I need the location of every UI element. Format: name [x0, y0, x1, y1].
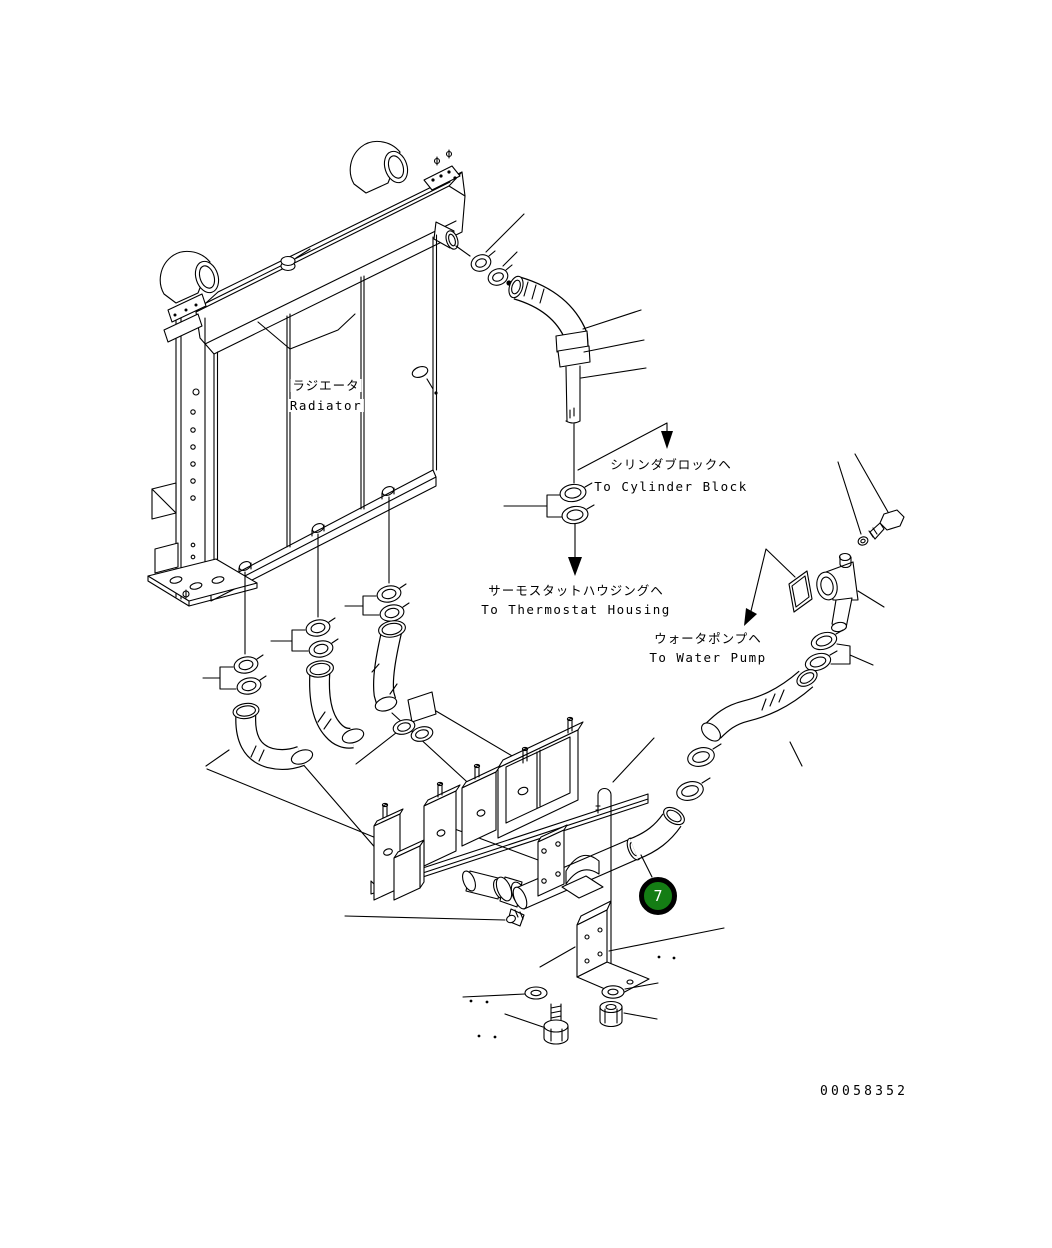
- diagram-line-art: [0, 0, 1052, 1248]
- down-arrow-water-pump: [744, 608, 757, 626]
- cylinder-block-label-en: To Cylinder Block: [592, 480, 749, 493]
- cylinder-block-hose: [469, 214, 673, 576]
- thermostat-housing-label-en: To Thermostat Housing: [479, 603, 673, 616]
- drawing-number: 00058352: [820, 1084, 908, 1099]
- water-pump-label-en: To Water Pump: [647, 651, 768, 664]
- water-pump-label-jp: ウォータポンプヘ: [652, 632, 764, 645]
- down-arrow-thermostat: [568, 557, 582, 576]
- radiator-assembly: [148, 141, 470, 606]
- radiator-label-en: Radiator: [288, 399, 364, 412]
- parts-diagram-page: ラジエータ Radiator シリンダブロックヘ To Cylinder Blo…: [0, 0, 1052, 1248]
- water-pump-connection: [675, 454, 904, 803]
- down-arrow-cylinder-block: [661, 431, 673, 449]
- thermostat-housing-label-jp: サーモスタットハウジングヘ: [486, 584, 666, 597]
- cylinder-block-label-jp: シリンダブロックヘ: [608, 458, 734, 471]
- part-callout-7[interactable]: 7: [639, 877, 677, 915]
- radiator-label-jp: ラジエータ: [290, 379, 361, 392]
- part-callout-number: 7: [653, 887, 662, 905]
